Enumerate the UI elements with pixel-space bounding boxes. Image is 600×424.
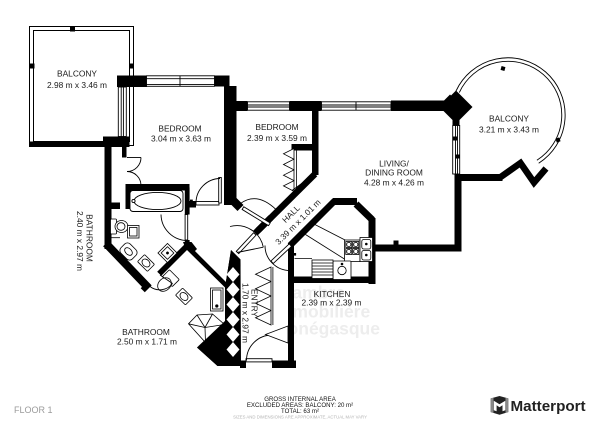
- svg-text:3.21 m x 3.43 m: 3.21 m x 3.43 m: [479, 125, 539, 135]
- svg-text:1.70 m x 2.97 m: 1.70 m x 2.97 m: [241, 283, 251, 343]
- svg-text:2.50 m x 1.71 m: 2.50 m x 1.71 m: [117, 337, 177, 347]
- svg-text:BATHROOM: BATHROOM: [122, 327, 170, 337]
- svg-text:BEDROOM: BEDROOM: [255, 122, 298, 132]
- svg-text:BEDROOM: BEDROOM: [158, 124, 201, 134]
- svg-text:Matterport: Matterport: [511, 398, 586, 415]
- svg-text:2.98 m x 3.46 m: 2.98 m x 3.46 m: [47, 80, 107, 90]
- svg-text:4.28 m x 4.26 m: 4.28 m x 4.26 m: [364, 178, 424, 188]
- svg-text:BALCONY: BALCONY: [57, 69, 97, 79]
- svg-text:2.39 m x 3.59 m: 2.39 m x 3.59 m: [247, 133, 307, 143]
- svg-text:SIZES AND DIMENSIONS ARE APPRO: SIZES AND DIMENSIONS ARE APPROXIMATE, AC…: [233, 415, 367, 420]
- svg-text:2.39 m x 2.39 m: 2.39 m x 2.39 m: [301, 298, 361, 308]
- svg-text:BATHROOM: BATHROOM: [85, 214, 95, 262]
- svg-text:BALCONY: BALCONY: [489, 114, 529, 124]
- svg-text:3.04 m x 3.63 m: 3.04 m x 3.63 m: [151, 134, 211, 144]
- svg-text:2.40 m x 2.97 m: 2.40 m x 2.97 m: [75, 211, 85, 271]
- svg-text:FLOOR 1: FLOOR 1: [14, 405, 53, 415]
- svg-text:DINING ROOM: DINING ROOM: [365, 168, 423, 178]
